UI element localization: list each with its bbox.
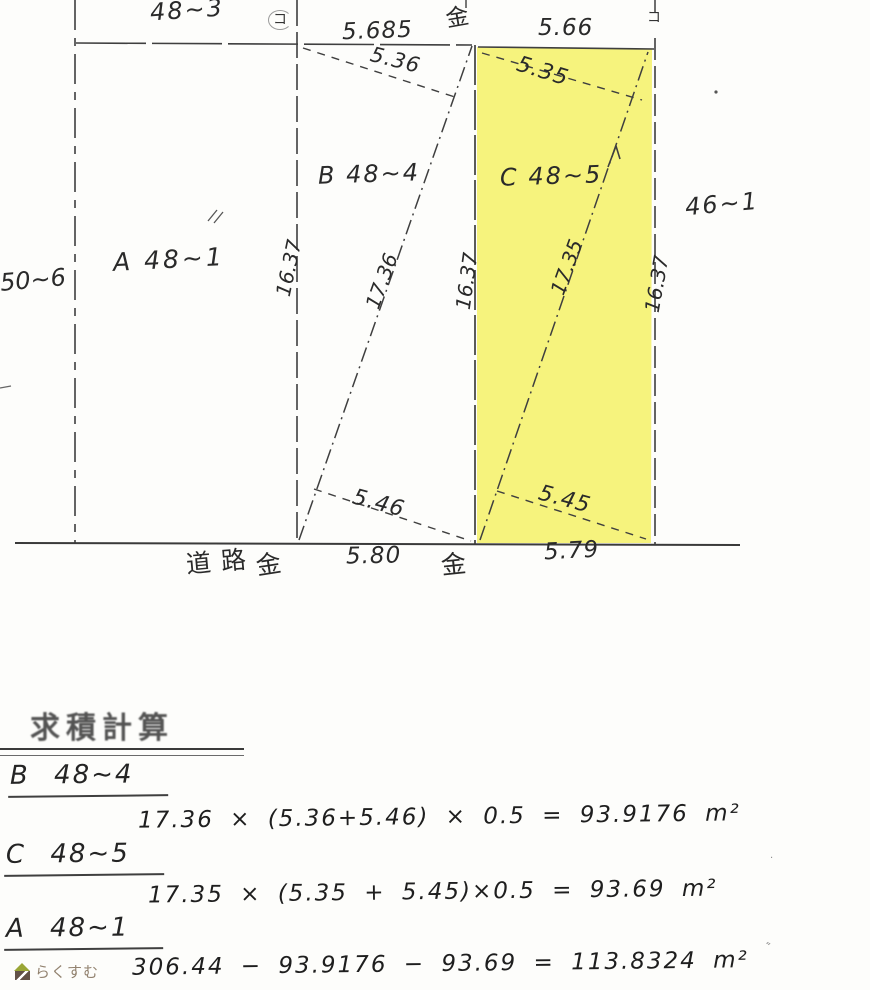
calc-formula-c: 17.35 × (5.35 + 5.45)×0.5 = 93.69 m² <box>148 876 718 909</box>
calc-formula-b: 17.36 × (5.36+5.46) × 0.5 = 93.9176 m² <box>138 800 741 833</box>
road-label: 道路 <box>185 546 257 577</box>
scan-mark <box>0 386 11 388</box>
calc-formula-a: 306.44 − 93.9176 − 93.69 = 113.8324 m² <box>132 947 749 981</box>
dim-bottom-c: 5.79 <box>543 539 599 565</box>
calc-title-underline <box>0 748 244 756</box>
scan-speck <box>714 90 717 93</box>
parcel-a-label: A 48~1 <box>112 244 225 275</box>
survey-marker-kane: 金 <box>440 551 467 578</box>
house-roof-icon <box>14 963 30 971</box>
dim-bottom-b: 5.80 <box>346 545 402 569</box>
parcel-50-6-label: 50~6 <box>0 265 67 295</box>
dim-top-c: 5.66 <box>538 17 593 40</box>
calc-section-title: 求積計算 <box>30 703 174 747</box>
scan-mark: “ <box>762 940 772 952</box>
parcel-b-label: B 48~4 <box>318 160 421 188</box>
calc-heading-a: A 48~1 <box>4 912 164 951</box>
calc-heading-b: B 48~4 <box>8 759 168 798</box>
scan-mark <box>208 210 217 221</box>
scan-speck: · <box>770 853 773 864</box>
calc-heading-c: C 48~5 <box>4 838 164 877</box>
survey-marker-ko: コ <box>268 10 292 30</box>
house-icon <box>14 963 31 980</box>
survey-marker-ko: コ <box>647 11 661 25</box>
north-boundary-west-line <box>76 43 472 45</box>
parcel-c-label: C 48~5 <box>500 162 603 190</box>
rakusumu-logo: らくすむ <box>14 961 99 982</box>
house-base-icon <box>15 971 30 980</box>
scan-mark <box>214 212 223 223</box>
survey-marker-kane: 金 <box>254 550 283 579</box>
logo-text: らくすむ <box>35 961 99 982</box>
dim-top-b: 5.685 <box>342 19 414 44</box>
scanned-survey-document: 48~3 コ 5.685 金 5.66 コ 5.36 5.35 B 48~4 C… <box>0 0 870 990</box>
parcel-46-1-label: 46~1 <box>684 189 760 219</box>
survey-marker-kane: 金 <box>444 5 471 32</box>
survey-map-drawing <box>0 0 870 600</box>
parcel-48-3-label: 48~3 <box>149 0 224 25</box>
